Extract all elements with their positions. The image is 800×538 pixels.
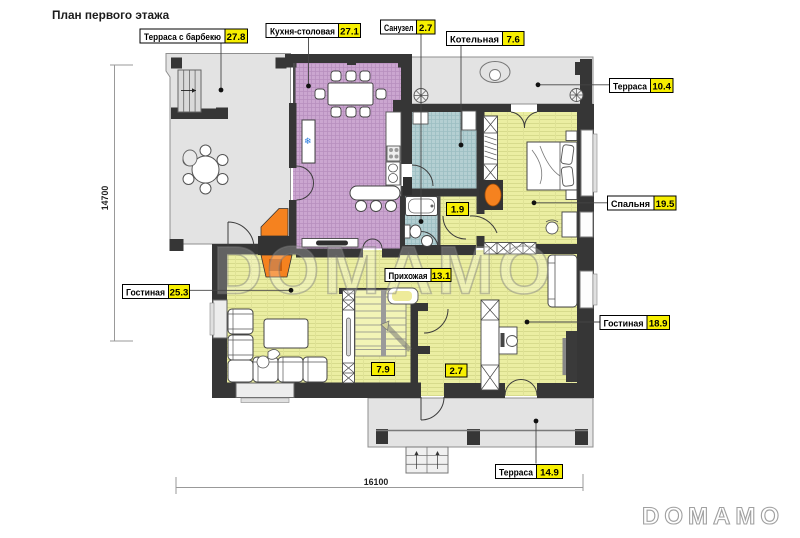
svg-text:План первого этажа: План первого этажа	[52, 8, 170, 22]
svg-text:Спальня: Спальня	[611, 199, 650, 210]
svg-text:Санузел: Санузел	[384, 23, 414, 34]
svg-text:10.4: 10.4	[652, 82, 671, 93]
svg-text:16100: 16100	[364, 477, 389, 487]
svg-text:13.1: 13.1	[432, 271, 451, 282]
svg-text:7.6: 7.6	[507, 35, 520, 46]
svg-text:Прихожая: Прихожая	[389, 271, 428, 282]
svg-text:27.8: 27.8	[227, 32, 246, 43]
svg-text:Гостиная: Гостиная	[604, 319, 644, 330]
svg-text:2.7: 2.7	[419, 23, 432, 34]
svg-text:Терраса с барбекю: Терраса с барбекю	[144, 32, 221, 43]
svg-text:1.9: 1.9	[451, 205, 464, 216]
svg-text:7.9: 7.9	[376, 365, 389, 376]
svg-text:Котельная: Котельная	[450, 35, 499, 46]
svg-text:Терраса: Терраса	[613, 82, 648, 93]
svg-text:Терраса: Терраса	[499, 468, 534, 479]
svg-text:Кухня-столовая: Кухня-столовая	[270, 27, 335, 38]
svg-text:DOMAMO: DOMAMO	[213, 233, 554, 309]
svg-text:2.7: 2.7	[450, 366, 463, 377]
svg-text:14.9: 14.9	[540, 468, 559, 479]
svg-text:19.5: 19.5	[656, 199, 675, 210]
svg-text:Гостиная: Гостиная	[126, 288, 165, 299]
svg-text:❄: ❄	[304, 136, 312, 146]
svg-text:27.1: 27.1	[340, 27, 359, 38]
svg-text:14700: 14700	[100, 186, 110, 211]
svg-text:DOMAMO: DOMAMO	[642, 503, 784, 530]
svg-text:18.9: 18.9	[649, 319, 668, 330]
svg-text:25.3: 25.3	[170, 288, 189, 299]
